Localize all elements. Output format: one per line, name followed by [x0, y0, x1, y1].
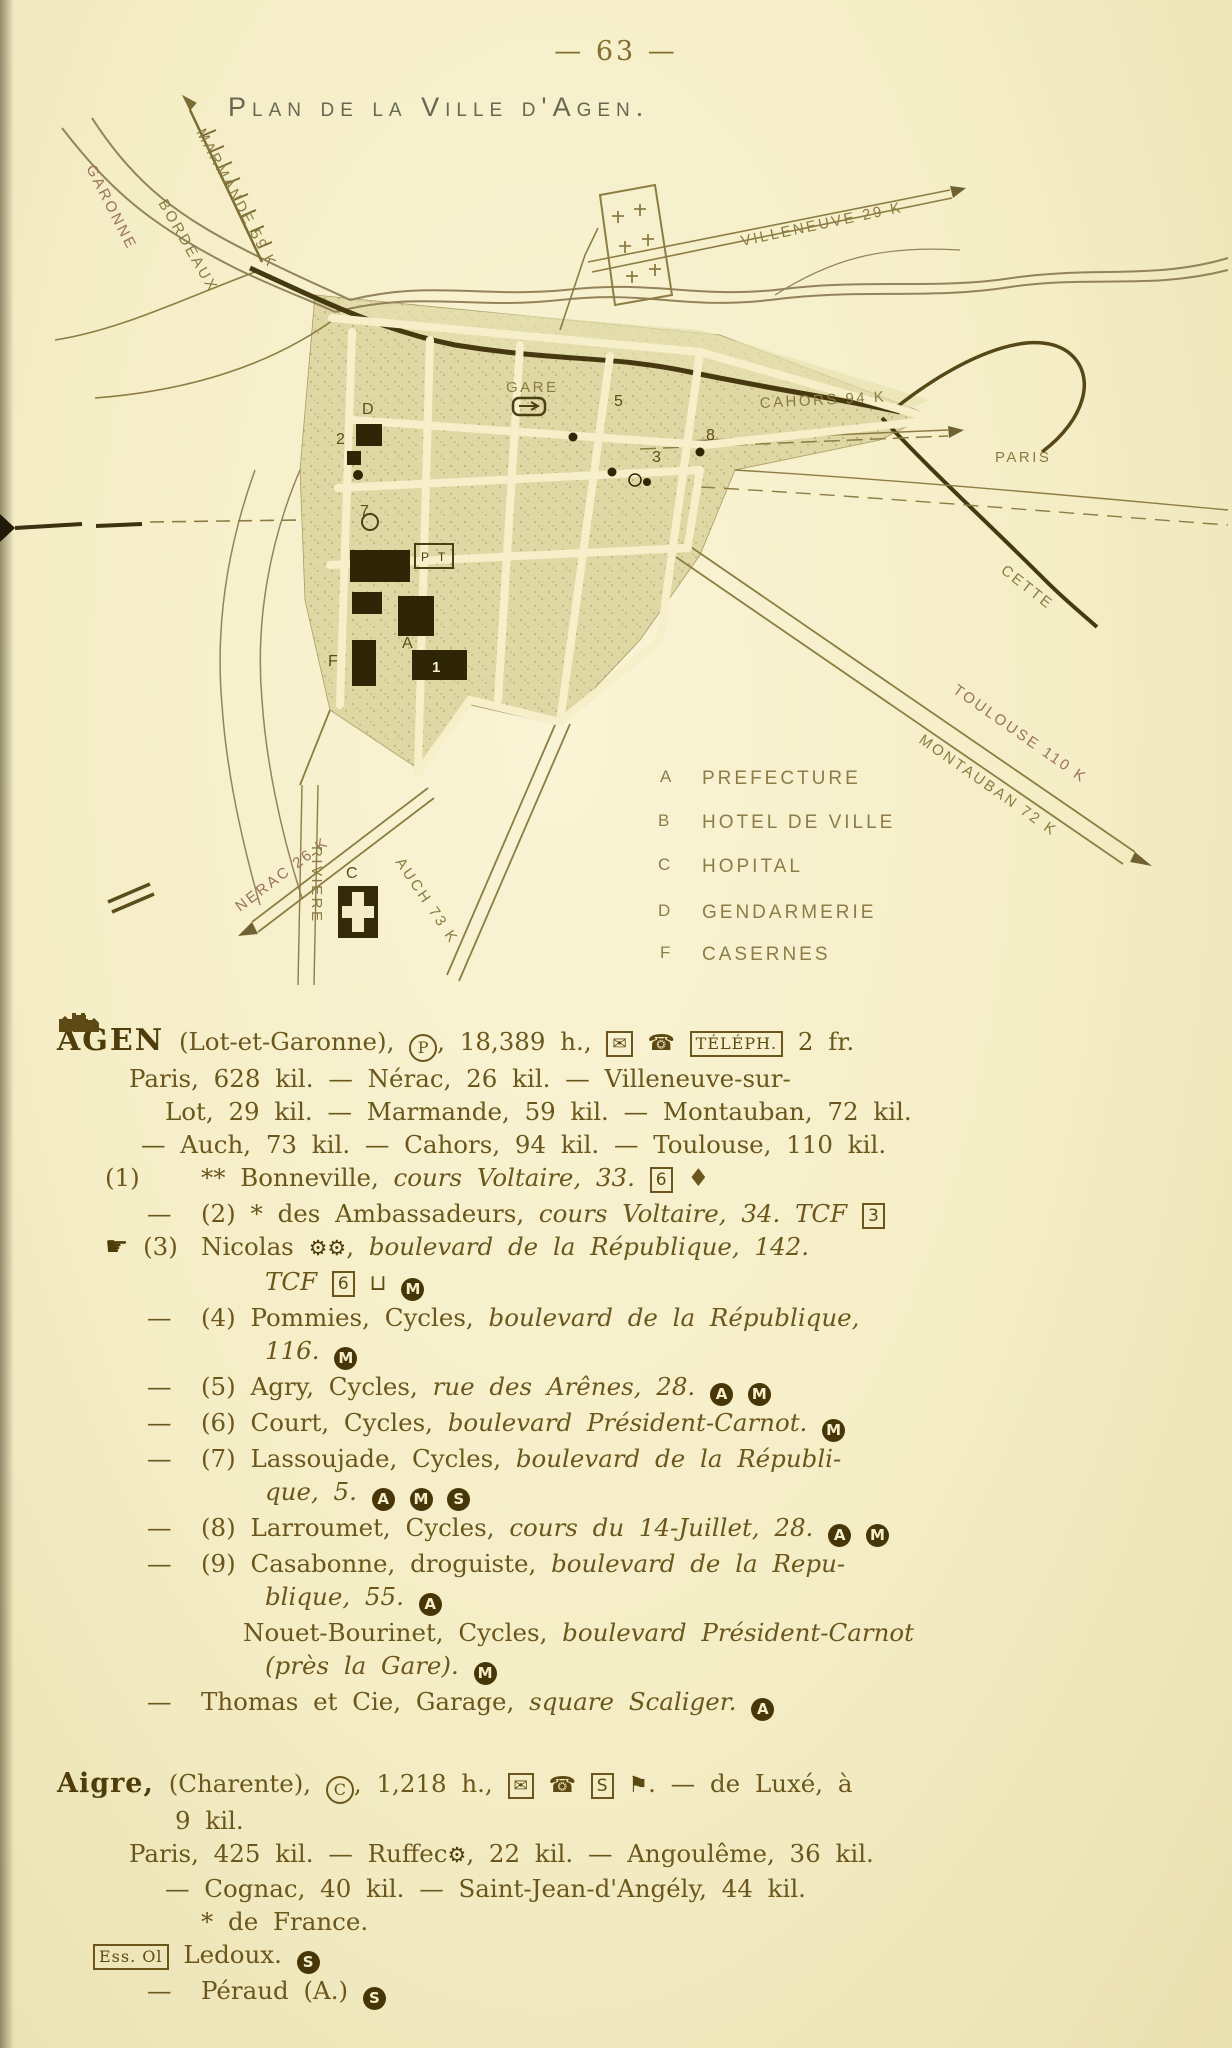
- listing-agry: —(5) Agry, Cycles, rue des Arênes, 28. A…: [57, 1370, 1182, 1406]
- listing-casabonne: —(9) Casabonne, droguiste, boulevard de …: [57, 1547, 1182, 1580]
- listing-name: Larroumet, Cycles,: [251, 1513, 495, 1542]
- marker-a: A: [402, 635, 413, 652]
- hotel-class-stars: *: [251, 1199, 263, 1228]
- listing-number: (9): [201, 1549, 236, 1578]
- rooms-box-icon: 6: [332, 1271, 355, 1297]
- listing-address: blique, 55.: [265, 1582, 404, 1611]
- stock-disc-icon: A: [372, 1488, 395, 1511]
- marker-2: 2: [336, 431, 345, 448]
- distance-text: Paris, 425 kil. — Ruffec: [129, 1839, 447, 1868]
- agen-entry-heading: AGEN (Lot-et-Garonne), P, 18,389 h., ✉ ☎…: [57, 1024, 1182, 1062]
- legend-key-a: A: [660, 767, 673, 786]
- ditto-dash: —: [105, 1370, 201, 1403]
- west-roads: [15, 272, 340, 528]
- bath-icon: ⊔: [370, 1271, 387, 1296]
- marker-c: C: [346, 865, 358, 882]
- legend-label-hopital: HOPITAL: [702, 856, 803, 877]
- agen-dept: (Lot-et-Garonne),: [179, 1027, 394, 1056]
- legend-label-gendarmerie: GENDARMERIE: [702, 902, 876, 923]
- marker-5: 5: [614, 393, 623, 410]
- stock-disc-icon: S: [297, 1951, 320, 1974]
- auch-label: AUCH 73 K: [392, 855, 462, 947]
- listing-name: Lassoujade, Cycles,: [251, 1444, 502, 1473]
- distance-text: , 22 kil. — Angoulême, 36 kil.: [466, 1839, 874, 1868]
- agen-fee: 2 fr.: [798, 1027, 854, 1056]
- listing-address: boulevard Président-Carnot: [562, 1618, 914, 1647]
- listing-number: (6): [201, 1408, 236, 1437]
- listing-name: Thomas et Cie, Garage,: [201, 1687, 514, 1716]
- agen-distances-line: — Auch, 73 kil. — Cahors, 94 kil. — Toul…: [141, 1128, 1182, 1161]
- legend-label-hotel-de-ville: HOTEL DE VILLE: [702, 812, 895, 833]
- stock-disc-icon: A: [419, 1593, 442, 1616]
- legend-key-d: D: [658, 901, 672, 920]
- ditto-dash: —: [105, 1406, 201, 1439]
- marker-8: 8: [706, 427, 715, 444]
- listing-number: (4): [201, 1303, 236, 1332]
- boxed-s-icon: S: [591, 1773, 614, 1799]
- listing-address: boulevard de la République,: [489, 1303, 860, 1332]
- pointing-hand-icon: ☛: [105, 1232, 128, 1262]
- listing-address: boulevard de la Repu-: [551, 1549, 845, 1578]
- stock-disc-icon: M: [474, 1662, 497, 1685]
- listing-de-france: * de France.: [57, 1905, 1182, 1938]
- listing-address: boulevard de la Républi-: [516, 1444, 841, 1473]
- agent-symbol-icon: ⚙: [327, 1236, 346, 1260]
- listing-name: Agry, Cycles,: [251, 1372, 418, 1401]
- listing-pommies-cont: 116. M: [265, 1334, 1182, 1370]
- legend-key-c: C: [658, 855, 672, 874]
- listing-address: boulevard de la République, 142.: [369, 1232, 809, 1261]
- post-office-building-label: P T: [421, 550, 448, 564]
- agent-symbol-icon: ⚙: [447, 1843, 466, 1867]
- listing-nicolas: ☛ (3)Nicolas ⚙⚙, boulevard de la Républi…: [57, 1230, 1182, 1265]
- city-map: GARONNE BORDEAUX MARMANDE 59 K VILLENEUV…: [0, 0, 1232, 1010]
- marker-3: 3: [652, 449, 661, 466]
- telephone-icon: ☎: [647, 1031, 674, 1056]
- villeneuve-label: VILLENEUVE 29 K: [739, 199, 904, 250]
- stock-disc-icon: A: [751, 1698, 774, 1721]
- listing-lassoujade: —(7) Lassoujade, Cycles, boulevard de la…: [57, 1442, 1182, 1475]
- stock-disc-icon: A: [828, 1524, 851, 1547]
- aigre-heading-cont: 9 kil.: [175, 1804, 1182, 1837]
- stock-disc-icon: M: [748, 1383, 771, 1406]
- rooms-box-icon: 6: [650, 1167, 673, 1193]
- canton-icon: C: [326, 1776, 354, 1804]
- ditto-dash: —: [105, 1301, 201, 1334]
- city-blocks: [300, 295, 930, 770]
- villeneuve-road: [560, 186, 966, 330]
- aigre-entry-heading: Aigre, (Charente), C, 1,218 h., ✉ ☎ S ⚑.…: [57, 1767, 1182, 1804]
- south-roads: [108, 710, 570, 985]
- east-road: [700, 470, 1228, 525]
- listing-bonneville: (1)** Bonneville, cours Voltaire, 33. 6 …: [57, 1161, 1182, 1197]
- listing-address: cours Voltaire, 34.: [539, 1199, 780, 1228]
- ditto-dash: —: [105, 1547, 201, 1580]
- listing-name: Pommies, Cycles,: [251, 1303, 474, 1332]
- marker-1: 1: [432, 659, 440, 676]
- legend-key-f: F: [660, 943, 672, 962]
- stock-disc-icon: M: [822, 1419, 845, 1442]
- aigre-distances-line: — Cognac, 40 kil. — Saint-Jean-d'Angély,…: [165, 1872, 1182, 1905]
- listing-address: (près la Gare).: [265, 1651, 459, 1680]
- listing-number: (2): [201, 1199, 236, 1228]
- legend-label-prefecture: PREFECTURE: [702, 768, 861, 789]
- separator: ,: [346, 1232, 354, 1261]
- riviere-label: RIVIERE: [308, 846, 325, 924]
- listing-larroumet: —(8) Larroumet, Cycles, cours du 14-Juil…: [57, 1511, 1182, 1547]
- listing-thomas: —Thomas et Cie, Garage, square Scaliger.…: [57, 1685, 1182, 1721]
- listing-nouet-bourinet: Nouet-Bourinet, Cycles, boulevard Présid…: [243, 1616, 1182, 1649]
- essence-oil-box-icon: Ess. Ol: [93, 1944, 169, 1970]
- ditto-dash: —: [105, 1974, 201, 2007]
- listing-number: (5): [201, 1372, 236, 1401]
- tcf-label: TCF: [795, 1199, 847, 1228]
- listing-nicolas-cont: TCF 6 ⊔ M: [265, 1265, 1182, 1301]
- hotel-class-stars: *: [201, 1907, 213, 1936]
- marker-f: F: [328, 653, 338, 670]
- marker-d: D: [362, 401, 374, 418]
- listing-name: Nicolas: [201, 1232, 294, 1261]
- agent-symbol-icon: ⚙: [309, 1236, 328, 1260]
- listing-ledoux: Ess. Ol Ledoux. S: [93, 1938, 1182, 1974]
- stock-disc-icon: M: [334, 1347, 357, 1370]
- listing-name: Nouet-Bourinet, Cycles,: [243, 1618, 547, 1647]
- ditto-dash: —: [105, 1197, 201, 1230]
- listing-address: cours du 14-Juillet, 28.: [509, 1513, 813, 1542]
- aigre-name: Aigre,: [57, 1768, 154, 1799]
- stock-disc-icon: M: [401, 1278, 424, 1301]
- listing-name: de France.: [228, 1907, 368, 1936]
- listing-court: —(6) Court, Cycles, boulevard Président-…: [57, 1406, 1182, 1442]
- aigre-distances-line: Paris, 425 kil. — Ruffec⚙, 22 kil. — Ang…: [129, 1837, 1182, 1872]
- ditto-dash: —: [105, 1511, 201, 1544]
- post-office-icon: P: [409, 1034, 437, 1062]
- gare-label: GARE: [506, 379, 559, 396]
- telephone-box-label: TÉLÉPH.: [690, 1031, 783, 1057]
- marmande-label: MARMANDE 59 K: [192, 126, 280, 271]
- listing-pommies: —(4) Pommies, Cycles, boulevard de la Ré…: [57, 1301, 1182, 1334]
- telegraph-icon: ✉: [606, 1031, 632, 1057]
- aigre-dept: (Charente),: [169, 1769, 311, 1798]
- garonne-label: GARONNE: [82, 162, 140, 253]
- paris-label: PARIS: [995, 449, 1051, 466]
- stock-disc-icon: S: [447, 1488, 470, 1511]
- listing-ambassadeurs: —(2) * des Ambassadeurs, cours Voltaire,…: [57, 1197, 1182, 1230]
- stock-disc-icon: A: [710, 1383, 733, 1406]
- listing-casabonne-cont: blique, 55. A: [265, 1580, 1182, 1616]
- listing-name: Péraud (A.): [201, 1976, 348, 2005]
- listing-name: Casabonne, droguiste,: [251, 1549, 537, 1578]
- scanned-guidebook-page: — 63 — Plan de la Ville d'Agen.: [0, 0, 1232, 2048]
- agen-population: 18,389 h.,: [460, 1027, 592, 1056]
- ditto-dash: —: [105, 1442, 201, 1475]
- listing-peraud: —Péraud (A.) S: [57, 1974, 1182, 2010]
- stock-disc-icon: S: [363, 1987, 386, 2010]
- listing-address: boulevard Président-Carnot.: [448, 1408, 808, 1437]
- listing-number: (1): [105, 1163, 140, 1192]
- marker-7: 7: [360, 503, 369, 520]
- agen-distances-line: Lot, 29 kil. — Marmande, 59 kil. — Monta…: [165, 1095, 1182, 1128]
- separator: . —: [648, 1769, 695, 1798]
- listing-name: des Ambassadeurs,: [278, 1199, 525, 1228]
- legend-key-b: B: [658, 811, 671, 830]
- entry-separator-space: [57, 1721, 1182, 1767]
- rail-station-text: de Luxé, à: [710, 1769, 853, 1798]
- legend-label-casernes: CASERNES: [702, 944, 831, 965]
- listing-name: Ledoux.: [183, 1940, 282, 1969]
- listing-number: (8): [201, 1513, 236, 1542]
- listing-name: Court, Cycles,: [251, 1408, 433, 1437]
- directory-text: AGEN (Lot-et-Garonne), P, 18,389 h., ✉ ☎…: [57, 1012, 1182, 2010]
- rooms-box-icon: 3: [862, 1203, 885, 1229]
- listing-name: Bonneville,: [240, 1163, 378, 1192]
- listing-nouet-cont: (près la Gare). M: [265, 1649, 1182, 1685]
- listing-address: cours Voltaire, 33.: [394, 1163, 635, 1192]
- listing-address: 116.: [265, 1336, 320, 1365]
- hotel-class-stars: **: [201, 1163, 226, 1192]
- listing-address: rue des Arênes, 28.: [433, 1372, 696, 1401]
- listing-address: que, 5.: [265, 1477, 357, 1506]
- telephone-icon: ☎: [549, 1773, 576, 1798]
- tcf-label: TCF: [265, 1267, 317, 1296]
- bordeaux-label: BORDEAUX: [155, 197, 222, 296]
- map-legend: A PREFECTURE B HOTEL DE VILLE C HOPITAL …: [658, 767, 895, 965]
- listing-lassoujade-cont: que, 5. A M S: [265, 1475, 1182, 1511]
- ditto-dash: —: [105, 1685, 201, 1718]
- diamond-icon: ♦: [687, 1163, 709, 1192]
- aigre-population: 1,218 h.,: [376, 1769, 492, 1798]
- signal-icon: ⚑: [628, 1773, 648, 1798]
- listing-number: (3): [143, 1232, 178, 1261]
- listing-address: square Scaliger.: [529, 1687, 736, 1716]
- listing-number: (7): [201, 1444, 236, 1473]
- stock-disc-icon: M: [866, 1524, 889, 1547]
- cette-label: CETTE: [998, 562, 1057, 613]
- telegraph-icon: ✉: [508, 1773, 534, 1799]
- agen-distances-line: Paris, 628 kil. — Nérac, 26 kil. — Ville…: [129, 1062, 1182, 1095]
- stock-disc-icon: M: [410, 1488, 433, 1511]
